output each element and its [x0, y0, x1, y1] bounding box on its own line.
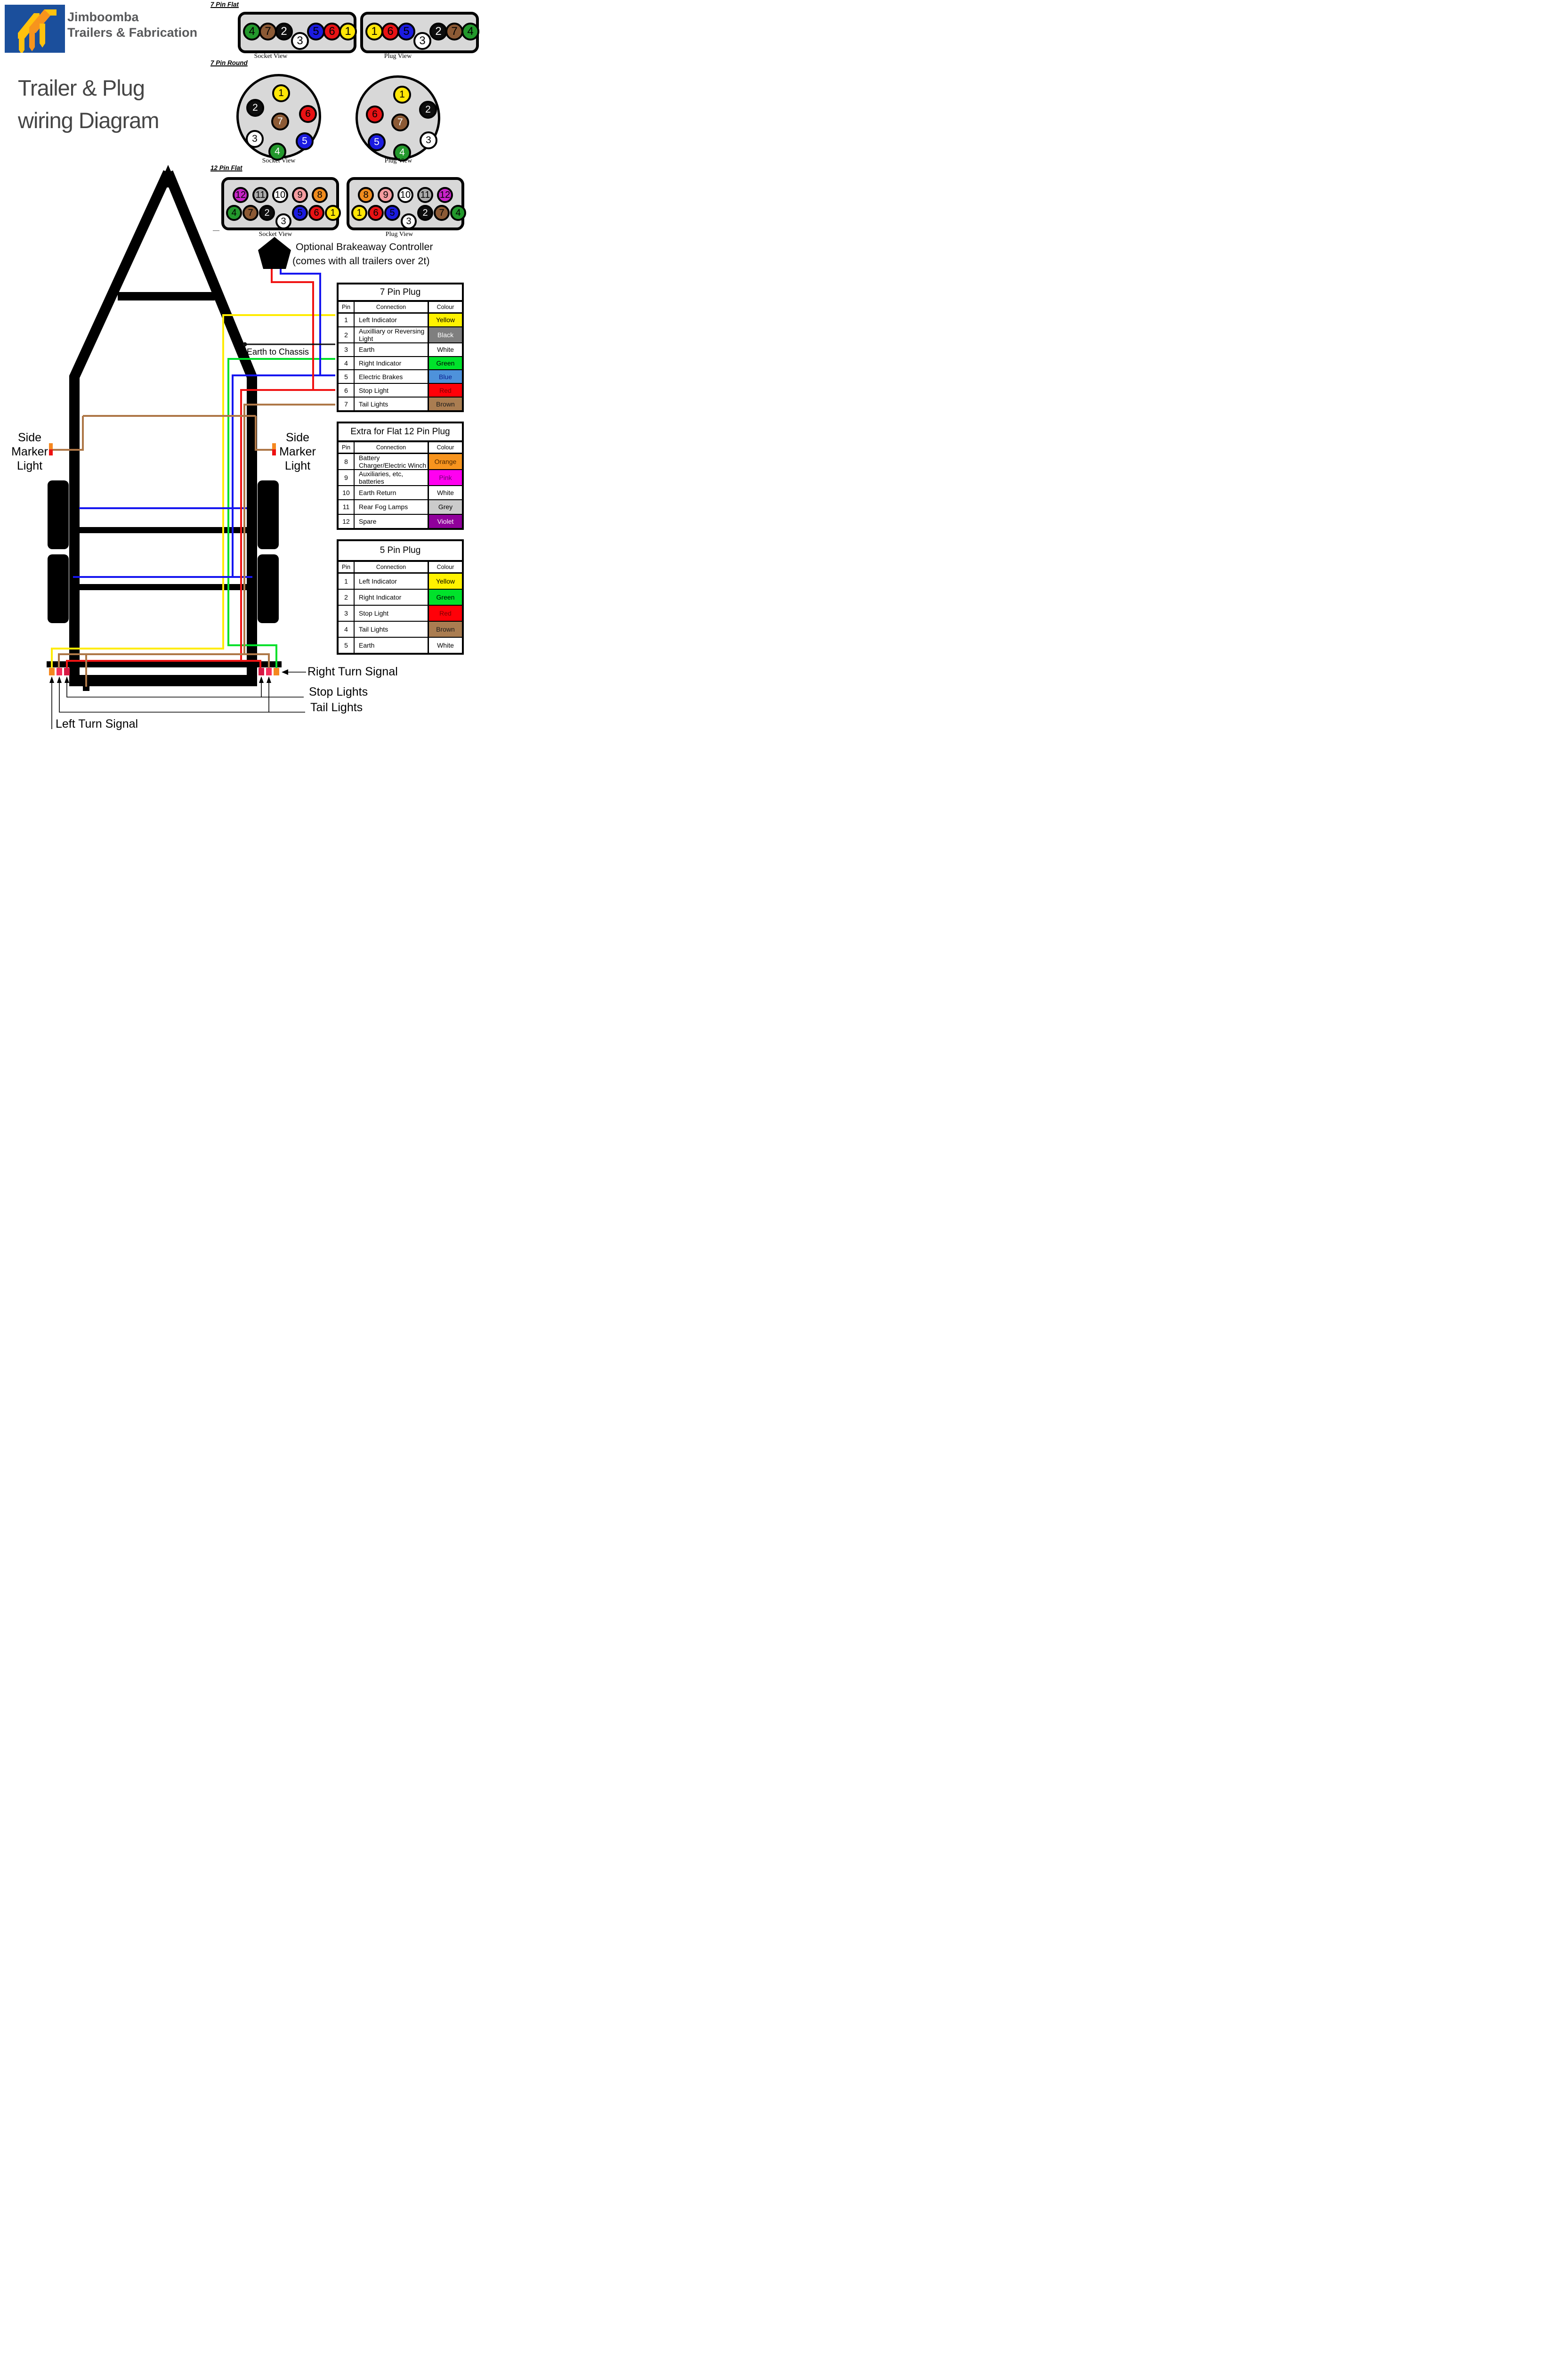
cell-colour: Grey [428, 500, 462, 513]
cell-pin: 8 [339, 454, 355, 469]
col-header-colour: Colour [428, 562, 462, 572]
connector-7-pin-round-plug: 1267354 [356, 75, 440, 160]
connector-7-pin-flat-socket: 4723561 [238, 12, 356, 53]
brakeaway-note-line1: Optional Brakeaway Controller [292, 240, 433, 254]
pin-11: 11 [417, 187, 433, 203]
earth-to-chassis-label: Earth to Chassis [247, 347, 309, 357]
cell-colour: Red [428, 606, 462, 621]
company-logo [5, 5, 65, 53]
caption-7flat-socket: Socket View [238, 53, 304, 60]
cell-pin: 7 [339, 398, 355, 410]
cell-colour: Pink [428, 470, 462, 485]
side-marker-label-right: SideMarkerLight [276, 430, 319, 473]
connector-7-pin-round-socket: 1267354 [236, 74, 321, 159]
side-marker-right-orange [272, 443, 276, 449]
side-marker-label-line: Side [5, 430, 55, 445]
cell-connection: Left Indicator [355, 574, 428, 589]
pin-4: 4 [461, 23, 479, 41]
pin-6: 6 [381, 23, 399, 41]
cell-connection: Earth [355, 343, 428, 356]
caption-12flat-socket: Socket View [242, 231, 308, 238]
table-header-row: PinConnectionColour [339, 562, 462, 574]
right-tail-light [266, 668, 272, 675]
cell-pin: 4 [339, 357, 355, 370]
pin-12: 12 [233, 187, 249, 203]
table-title: 7 Pin Plug [339, 284, 462, 302]
pin-1: 1 [272, 84, 290, 102]
left-tail-light [57, 668, 62, 675]
logo-mark [5, 5, 65, 53]
axle-front [79, 527, 247, 533]
connector-12-pin-flat-socket: 121110984723561 [221, 177, 339, 230]
company-name: Jimboomba Trailers & Fabrication [67, 9, 197, 41]
pin-9: 9 [378, 187, 394, 203]
pin-2: 2 [259, 205, 275, 221]
table-row-pin-1: 1Left IndicatorYellow [339, 314, 462, 327]
pin-3: 3 [413, 32, 431, 50]
right-stop-light [259, 668, 264, 675]
pin-4: 4 [243, 23, 261, 41]
brakeaway-note: Optional Brakeaway Controller (comes wit… [292, 240, 433, 268]
pin-3: 3 [246, 130, 264, 148]
caption-12flat-plug: Plug View [366, 231, 432, 238]
cell-connection: Earth [355, 638, 428, 653]
col-header-colour: Colour [428, 302, 462, 312]
left-turn-light [49, 668, 55, 675]
wire-yellow-left-indicator [52, 315, 335, 669]
cell-colour: Yellow [428, 574, 462, 589]
pin-1: 1 [393, 86, 411, 104]
col-header-colour: Colour [428, 442, 462, 453]
pin-7: 7 [434, 205, 450, 221]
cell-connection: Tail Lights [355, 398, 428, 410]
col-header-connection: Connection [355, 302, 428, 312]
cell-connection: Rear Fog Lamps [355, 500, 428, 513]
cell-pin: 3 [339, 343, 355, 356]
cell-colour: Yellow [428, 314, 462, 326]
wiring-diagram-page: { "header": { "company_line1": "Jimboomb… [0, 0, 470, 736]
pin-2: 2 [419, 101, 437, 119]
cell-colour: White [428, 638, 462, 653]
section-label-12-pin-flat: 12 Pin Flat [210, 164, 242, 171]
table-row-pin-3: 3EarthWhite [339, 343, 462, 357]
pin-6: 6 [308, 205, 324, 221]
cell-connection: Earth Return [355, 486, 428, 499]
table-row-pin-3: 3Stop LightRed [339, 606, 462, 622]
cell-connection: Electric Brakes [355, 370, 428, 383]
table-row-pin-10: 10Earth ReturnWhite [339, 486, 462, 500]
company-name-line2: Trailers & Fabrication [67, 25, 197, 41]
table-title: 5 Pin Plug [339, 541, 462, 562]
pin-1: 1 [339, 23, 357, 41]
table-row-pin-2: 2Right IndicatorGreen [339, 590, 462, 606]
pin-6: 6 [366, 106, 384, 123]
pin-5: 5 [397, 23, 415, 41]
cell-connection: Right Indicator [355, 357, 428, 370]
side-marker-label-line: Light [276, 459, 319, 473]
table-row-pin-8: 8Battery Charger/Electric WinchOrange [339, 454, 462, 470]
pin-10: 10 [272, 187, 288, 203]
cell-pin: 5 [339, 638, 355, 653]
brakeaway-controller-shape [258, 237, 291, 269]
earth-chassis-dot [243, 342, 247, 347]
connector-7-pin-flat-plug: 1653274 [360, 12, 479, 53]
cell-pin: 6 [339, 384, 355, 397]
wheel-right-rear [258, 554, 279, 623]
cell-pin: 9 [339, 470, 355, 485]
pin-6: 6 [299, 105, 317, 123]
licence-plate-stub [83, 686, 89, 691]
pin-8: 8 [312, 187, 328, 203]
pin-7: 7 [242, 205, 259, 221]
cell-colour: White [428, 343, 462, 356]
wheel-left-front [48, 480, 69, 549]
cell-pin: 10 [339, 486, 355, 499]
page-title: Trailer & Plug wiring Diagram [18, 72, 159, 137]
pin-2: 2 [275, 23, 293, 41]
col-header-pin: Pin [339, 562, 355, 572]
pin-6: 6 [323, 23, 341, 41]
wheel-right-front [258, 480, 279, 549]
caption-round-plug: Plug View [365, 157, 431, 165]
dash-mark: — [213, 227, 219, 235]
side-marker-label-left: SideMarkerLight [5, 430, 55, 473]
pin-3: 3 [275, 213, 291, 229]
col-header-connection: Connection [355, 562, 428, 572]
side-marker-label-line: Marker [276, 445, 319, 459]
pin-5: 5 [296, 132, 314, 150]
pin-3: 3 [291, 32, 309, 50]
tail-lights-label: Tail Lights [310, 701, 363, 715]
cell-colour: Black [428, 327, 462, 342]
table-extra-12-pin-plug: Extra for Flat 12 Pin PlugPinConnectionC… [337, 422, 464, 530]
side-marker-right-red [272, 449, 276, 455]
pin-4: 4 [226, 205, 242, 221]
pin-9: 9 [292, 187, 308, 203]
caption-7flat-plug: Plug View [365, 53, 431, 60]
cell-pin: 2 [339, 590, 355, 605]
table-row-pin-1: 1Left IndicatorYellow [339, 574, 462, 590]
rear-lights [49, 668, 279, 675]
cell-connection: Left Indicator [355, 314, 428, 326]
table-row-pin-2: 2Auxilliary or Reversing LightBlack [339, 327, 462, 343]
left-stop-light [64, 668, 70, 675]
pin-1: 1 [351, 205, 367, 221]
col-header-pin: Pin [339, 302, 355, 312]
cell-pin: 2 [339, 327, 355, 342]
col-header-pin: Pin [339, 442, 355, 453]
wheel-left-rear [48, 554, 69, 623]
pin-2: 2 [429, 23, 447, 41]
pin-6: 6 [368, 205, 384, 221]
table-row-pin-4: 4Right IndicatorGreen [339, 357, 462, 371]
cell-connection: Stop Light [355, 384, 428, 397]
section-label-7-pin-flat: 7 Pin Flat [210, 1, 239, 8]
pin-7: 7 [259, 23, 277, 41]
cell-connection: Stop Light [355, 606, 428, 621]
pin-1: 1 [365, 23, 383, 41]
side-marker-label-line: Side [276, 430, 319, 445]
pin-2: 2 [246, 99, 264, 117]
page-title-line2: wiring Diagram [18, 104, 159, 137]
axle-rear [79, 584, 247, 590]
cell-colour: Orange [428, 454, 462, 469]
pin-11: 11 [252, 187, 268, 203]
table-row-pin-5: 5EarthWhite [339, 638, 462, 653]
table-header-row: PinConnectionColour [339, 302, 462, 314]
cell-connection: Battery Charger/Electric Winch [355, 454, 428, 469]
company-name-line1: Jimboomba [67, 9, 197, 25]
trailer-bumper [47, 661, 282, 667]
trailer-left-rail [74, 172, 168, 683]
cell-connection: Tail Lights [355, 622, 428, 637]
table-5-pin-plug: 5 Pin PlugPinConnectionColour1Left Indic… [337, 539, 464, 655]
brakeaway-note-line2: (comes with all trailers over 2t) [292, 254, 433, 268]
pin-8: 8 [358, 187, 374, 203]
side-marker-label-line: Light [5, 459, 55, 473]
cell-pin: 1 [339, 574, 355, 589]
section-label-7-pin-round: 7 Pin Round [210, 59, 248, 66]
left-turn-signal-label: Left Turn Signal [56, 717, 138, 731]
side-marker-label-line: Marker [5, 445, 55, 459]
table-header-row: PinConnectionColour [339, 442, 462, 454]
table-row-pin-11: 11Rear Fog LampsGrey [339, 500, 462, 514]
right-turn-signal-label: Right Turn Signal [307, 665, 398, 679]
pin-3: 3 [420, 131, 437, 149]
cell-connection: Auxiliaries, etc, batteries [355, 470, 428, 485]
table-7-pin-plug: 7 Pin PlugPinConnectionColour1Left Indic… [337, 283, 464, 412]
pin-7: 7 [391, 114, 409, 131]
trailer-frame [47, 165, 282, 691]
pin-12: 12 [437, 187, 453, 203]
pin-7: 7 [445, 23, 463, 41]
connector-12-pin-flat-plug: 891011121653274 [347, 177, 464, 230]
cell-colour: Brown [428, 398, 462, 410]
table-row-pin-7: 7Tail LightsBrown [339, 398, 462, 410]
table-row-pin-9: 9Auxiliaries, etc, batteriesPink [339, 470, 462, 486]
cell-colour: Violet [428, 515, 462, 528]
trailer-right-rail [168, 172, 252, 683]
cell-connection: Spare [355, 515, 428, 528]
pin-7: 7 [271, 113, 289, 130]
pin-1: 1 [325, 205, 341, 221]
table-row-pin-4: 4Tail LightsBrown [339, 622, 462, 638]
cell-colour: Red [428, 384, 462, 397]
caption-round-socket: Socket View [246, 157, 312, 165]
pin-4: 4 [450, 205, 466, 221]
table-row-pin-12: 12SpareViolet [339, 515, 462, 528]
trailer-rear-crossmember [69, 675, 257, 686]
cell-connection: Right Indicator [355, 590, 428, 605]
cell-colour: Brown [428, 622, 462, 637]
pin-10: 10 [397, 187, 413, 203]
table-row-pin-5: 5Electric BrakesBlue [339, 370, 462, 384]
cell-connection: Auxilliary or Reversing Light [355, 327, 428, 342]
cell-pin: 5 [339, 370, 355, 383]
cell-colour: Green [428, 590, 462, 605]
wire-red-brakeaway [272, 269, 313, 390]
cell-colour: Green [428, 357, 462, 370]
pin-5: 5 [307, 23, 325, 41]
pin-2: 2 [417, 205, 433, 221]
pin-5: 5 [368, 133, 386, 151]
stop-lights-label: Stop Lights [309, 685, 368, 699]
pin-5: 5 [292, 205, 308, 221]
cell-pin: 3 [339, 606, 355, 621]
page-title-line1: Trailer & Plug [18, 72, 159, 104]
pin-3: 3 [401, 213, 417, 229]
cell-pin: 12 [339, 515, 355, 528]
cell-pin: 11 [339, 500, 355, 513]
wire-brown-marker-right [256, 416, 272, 450]
pin-5: 5 [384, 205, 400, 221]
table-row-pin-6: 6Stop LightRed [339, 384, 462, 398]
cell-colour: Blue [428, 370, 462, 383]
table-title: Extra for Flat 12 Pin Plug [339, 423, 462, 442]
cell-colour: White [428, 486, 462, 499]
right-turn-light [274, 668, 279, 675]
cell-pin: 1 [339, 314, 355, 326]
col-header-connection: Connection [355, 442, 428, 453]
cell-pin: 4 [339, 622, 355, 637]
